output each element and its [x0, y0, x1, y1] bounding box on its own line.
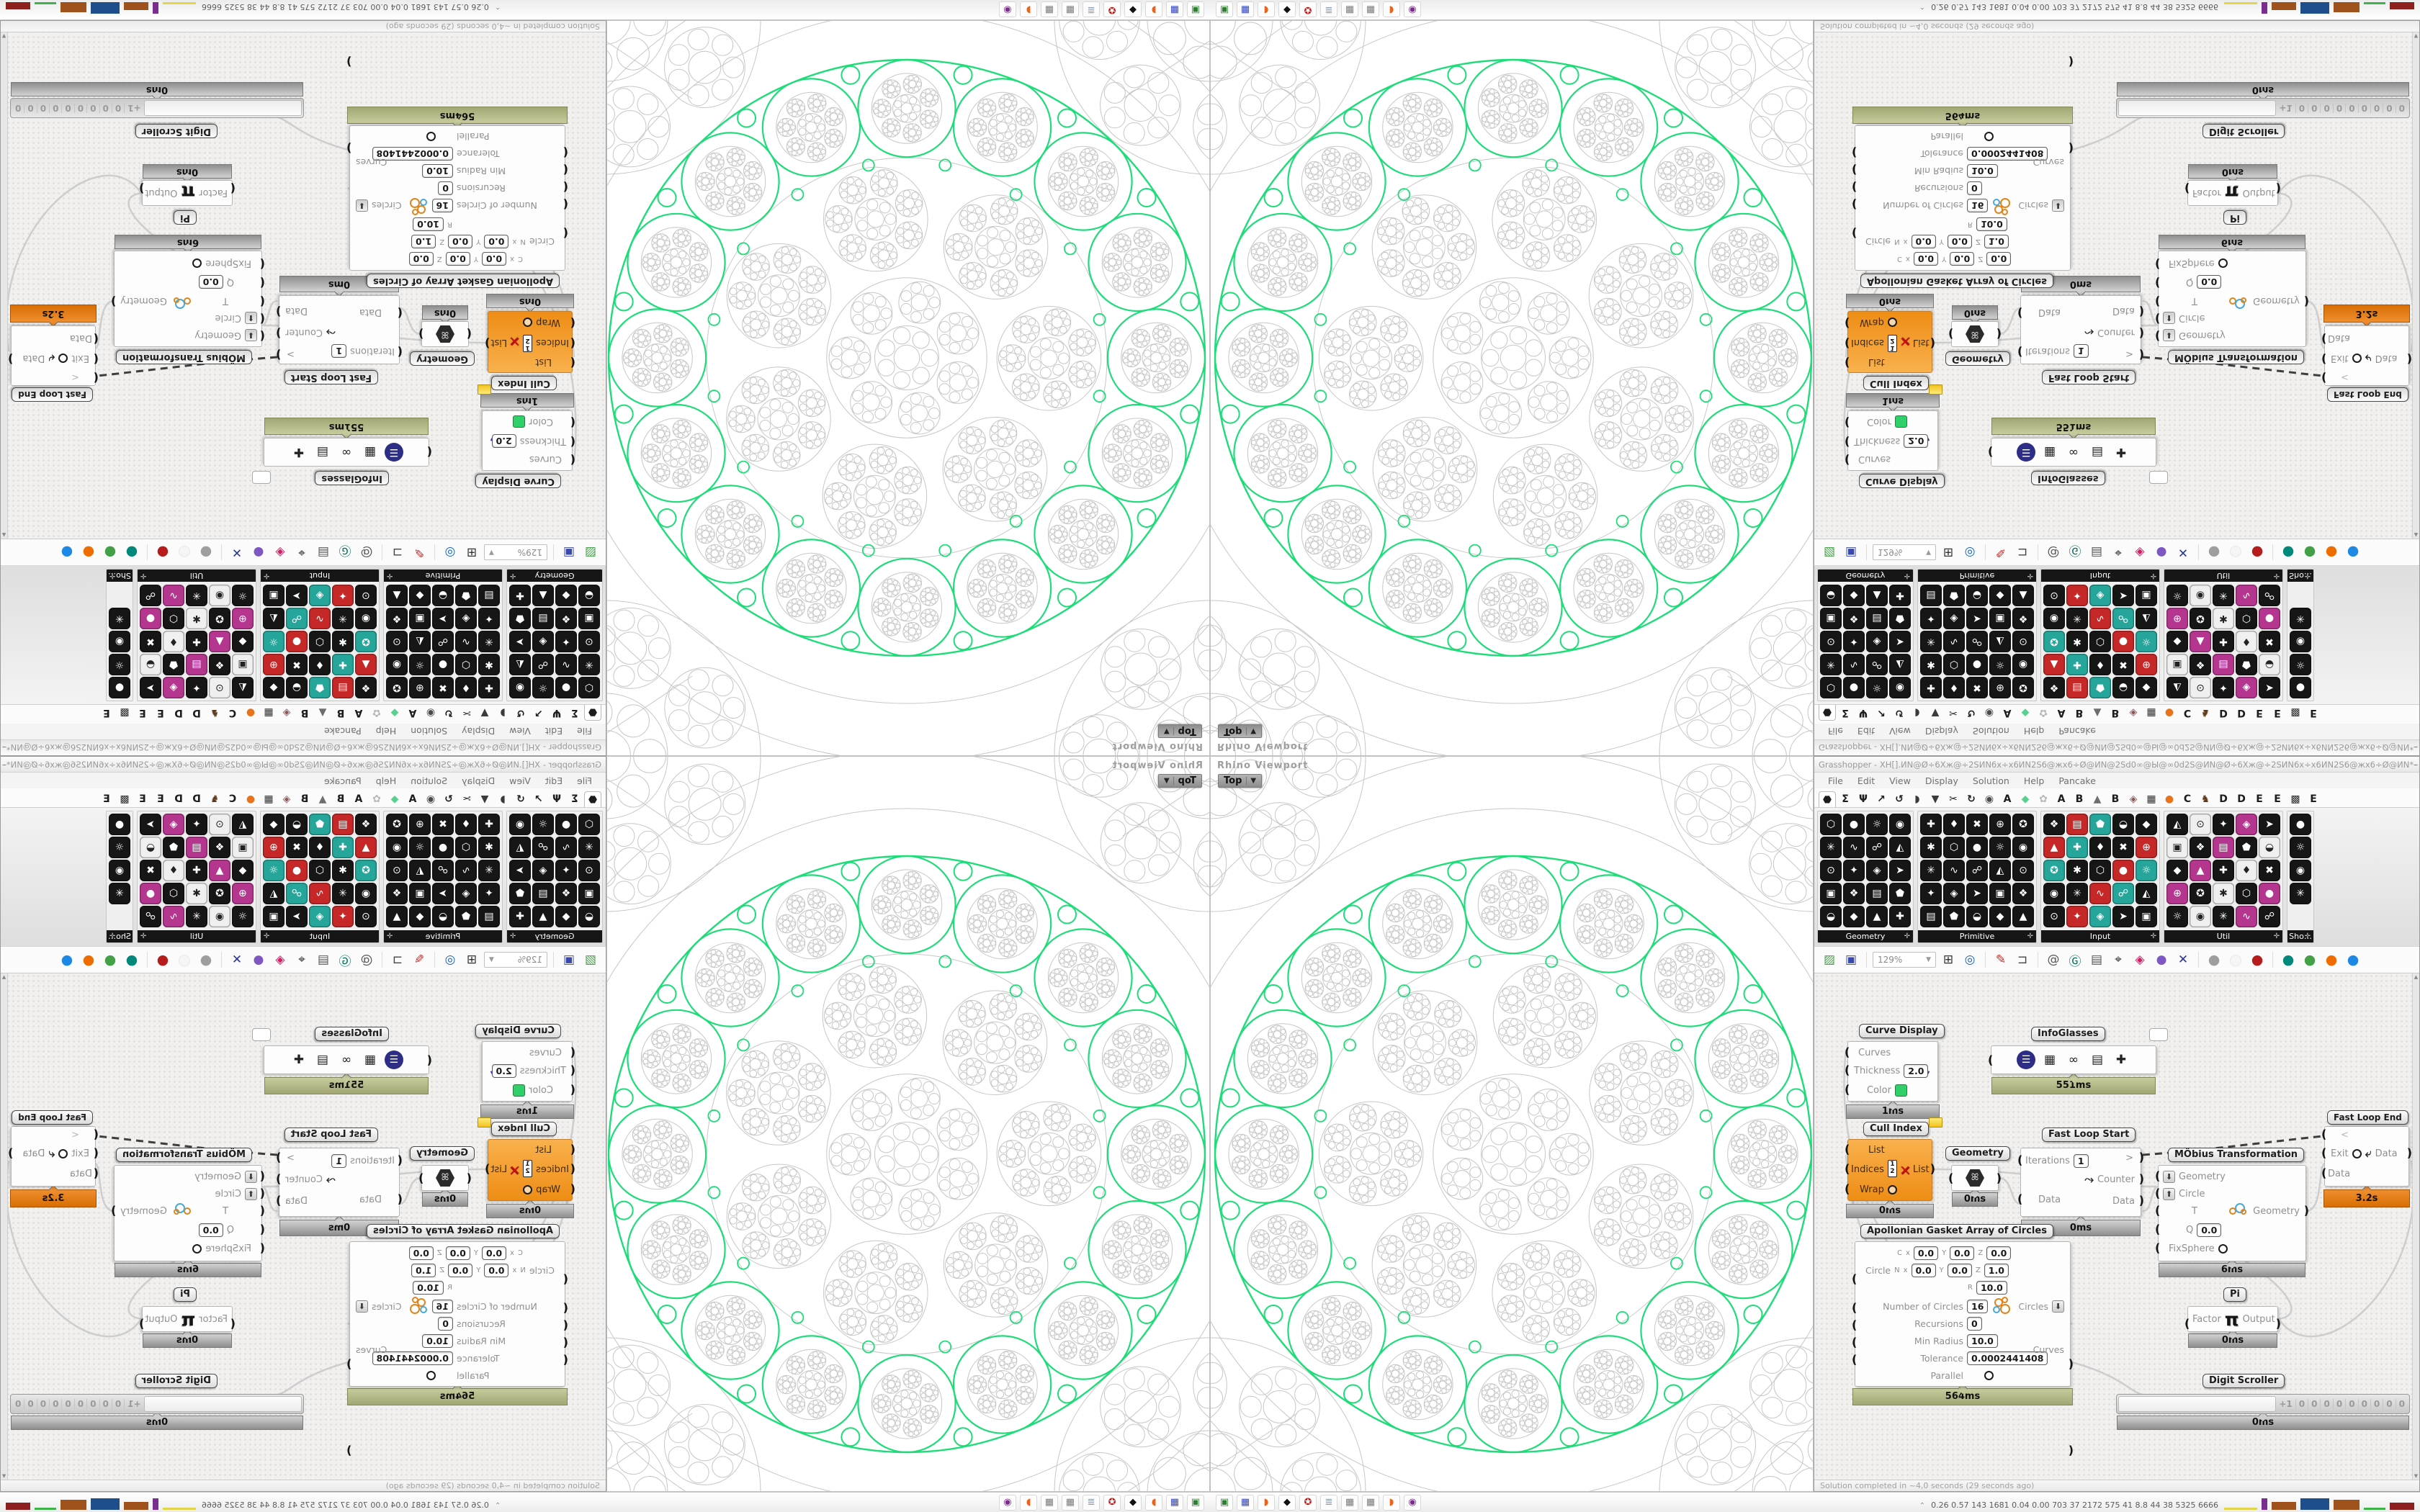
indices-input[interactable]: Indices	[1851, 338, 1884, 348]
infoglasses-title[interactable]: InfoGlasses	[2031, 471, 2105, 485]
taskbar-app-owl[interactable]: ◉	[999, 2, 1016, 18]
tab-curve[interactable]: ↺	[1891, 791, 1908, 807]
tab-plugin-flower[interactable]: ✿	[2035, 705, 2052, 721]
fast-loop-start-title[interactable]: Fast Loop Start	[284, 370, 378, 384]
palette-icon[interactable]: ✚	[186, 631, 207, 652]
recursions-value[interactable]: 0	[1967, 1317, 1982, 1331]
taskbar-app-firefox-2[interactable]: ◗	[1383, 2, 1400, 18]
palette-icon[interactable]: ☼	[2136, 631, 2157, 652]
graft-up-icon[interactable]: ⬆	[245, 312, 257, 325]
palette-icon[interactable]: ▤	[332, 814, 354, 835]
gumdrop-icon-2[interactable]: ●	[2248, 950, 2267, 969]
taskbar-app-maze-1[interactable]: ▦	[1341, 1495, 1358, 1511]
tab-transform[interactable]: ↻	[1963, 705, 1980, 721]
palette-icon[interactable]: ◉	[386, 837, 408, 858]
palette-icon[interactable]: ⬡	[163, 608, 184, 629]
palette-icon[interactable]: ☍	[2259, 585, 2280, 606]
scroller-digit[interactable]: 0	[62, 103, 74, 113]
chevron-down-icon[interactable]: ▼	[1164, 727, 1174, 735]
palette-icon[interactable]: ▲	[1866, 585, 1888, 606]
radius-value[interactable]: 10.0	[1976, 218, 2007, 232]
palette-icon[interactable]: ⊕	[2136, 654, 2157, 675]
tab-mesh[interactable]: ▼	[476, 705, 493, 721]
canvas-scrollbar[interactable]: ▲▼	[1, 32, 8, 539]
palette-icon[interactable]: ♦	[2089, 654, 2111, 675]
palette-icon[interactable]: ⬟	[2236, 837, 2257, 858]
taskbar-app-wolf[interactable]: ◆	[1278, 2, 1296, 18]
palette-group-label[interactable]: Sho…✛	[2287, 930, 2313, 942]
gumdrop-icon-4[interactable]: ●	[2300, 543, 2319, 562]
digit-scroller-slider[interactable]: +1000000000	[10, 1394, 304, 1414]
palette-icon[interactable]: ◒	[2112, 814, 2134, 835]
curves-input[interactable]: Curves	[529, 1048, 562, 1058]
fixsphere-toggle[interactable]	[192, 1244, 202, 1254]
palette-icon[interactable]: ⬟	[455, 585, 477, 606]
taskbar-app-notepad[interactable]: ≣	[1083, 2, 1100, 18]
zoom-extents-icon[interactable]: ⊞	[462, 543, 481, 562]
tab-plugin-bird[interactable]: ♞	[2197, 705, 2214, 721]
digit-scroller-slider[interactable]: +1000000000	[2116, 98, 2410, 118]
palette-icon[interactable]: ●	[1843, 677, 1865, 698]
recursions-value[interactable]: 0	[438, 1317, 453, 1331]
palette-icon[interactable]: ⬡	[1943, 654, 1965, 675]
tab-plugin-e2[interactable]: E	[2269, 791, 2286, 807]
tab-plugin-b2[interactable]: B	[2107, 791, 2124, 807]
palette-icon[interactable]: ✪	[386, 814, 408, 835]
exit-toggle[interactable]	[58, 354, 68, 364]
palette-icon[interactable]: ✖	[432, 677, 454, 698]
palette-icon[interactable]: ❖	[2190, 654, 2211, 675]
palette-icon[interactable]: ▣	[2136, 906, 2157, 927]
palette-icon[interactable]: ☍	[1966, 860, 1988, 881]
sticky-note-icon[interactable]	[478, 1117, 491, 1128]
center-x[interactable]: 0.0	[482, 1246, 506, 1260]
tab-sets[interactable]: Ψ	[548, 791, 565, 807]
tab-sets[interactable]: Ψ	[1855, 791, 1872, 807]
palette-icon[interactable]: ∿	[555, 654, 577, 675]
tab-mesh[interactable]: ▼	[1927, 705, 1944, 721]
palette-icon[interactable]: ♦	[163, 860, 184, 881]
palette-icon[interactable]: ➤	[140, 814, 161, 835]
pi-output[interactable]: Output	[2243, 1314, 2275, 1325]
tab-plugin-flower[interactable]: ✿	[2035, 791, 2052, 807]
scroller-digit[interactable]: 0	[2383, 103, 2395, 113]
palette-icon[interactable]: ◆	[555, 585, 577, 606]
palette-group-label[interactable]: Input✛	[2041, 570, 2159, 582]
taskbar-app-terminal[interactable]: ▣	[1216, 2, 1233, 18]
tab-plugin-dot[interactable]: ●	[242, 705, 259, 721]
curve-display-title[interactable]: Curve Display	[475, 1024, 561, 1038]
palette-icon[interactable]: ☼	[2166, 585, 2188, 606]
palette-icon[interactable]: ⬡	[1820, 814, 1842, 835]
palette-icon[interactable]: ◒	[432, 585, 454, 606]
palette-icon[interactable]: ✱	[1920, 837, 1942, 858]
list-input[interactable]: List	[535, 1145, 552, 1156]
save-icon[interactable]: ▣	[560, 543, 578, 562]
factor-input[interactable]: Factor	[2192, 1314, 2221, 1325]
tab-plugin-a1[interactable]: A	[404, 791, 421, 807]
palette-icon[interactable]: ⊙	[355, 585, 377, 606]
infoglasses-goggles-icon[interactable]: ∞	[2064, 1050, 2083, 1069]
graft-up-icon[interactable]: ⬆	[2163, 1188, 2175, 1200]
palette-icon[interactable]: ❖	[2043, 814, 2065, 835]
tab-plugin-mountain[interactable]: ▲	[314, 791, 331, 807]
palette-icon[interactable]: ◉	[509, 814, 531, 835]
gumdrop-icon-6[interactable]: ●	[58, 543, 76, 562]
palette-icon[interactable]: ☼	[1866, 677, 1888, 698]
palette-group-label[interactable]: Geometry✛	[1818, 930, 1913, 942]
palette-icon[interactable]: ◒	[1820, 906, 1842, 927]
chevron-down-icon[interactable]: ▼	[1246, 777, 1256, 785]
mobius-geometry-output[interactable]: Geometry	[120, 1206, 167, 1217]
gumdrop-icon-0[interactable]: ●	[2205, 543, 2223, 562]
parallel-toggle[interactable]	[426, 1371, 436, 1380]
palette-icon[interactable]: ✦	[186, 814, 207, 835]
palette-icon[interactable]: ✚	[1889, 906, 1911, 927]
loop-arrow-output[interactable]: >	[2125, 349, 2133, 360]
gha-icon[interactable]: Ⓖ	[336, 543, 354, 562]
taskbar-app-firefox[interactable]: ◗	[1258, 2, 1275, 18]
palette-icon[interactable]: ◆	[1843, 585, 1865, 606]
palette-icon[interactable]: ☍	[140, 585, 161, 606]
scroller-digit[interactable]: 0	[2308, 103, 2320, 113]
save-icon[interactable]: ▣	[560, 950, 578, 969]
taskbar-app-terminal[interactable]: ▣	[1187, 2, 1204, 18]
palette-icon[interactable]: ❖	[2012, 883, 2034, 904]
palette-icon[interactable]: ☼	[1866, 814, 1888, 835]
tab-plugin-a1[interactable]: A	[404, 705, 421, 721]
palette-icon[interactable]: ➤	[1889, 631, 1911, 652]
palette-icon[interactable]: ◆	[1989, 906, 2011, 927]
taskbar-app-maze-1[interactable]: ▦	[1341, 2, 1358, 18]
curves-output[interactable]: Curves	[356, 1344, 387, 1355]
tab-plugin-d2[interactable]: D	[170, 705, 187, 721]
sketch-pen-icon[interactable]: ✎	[1991, 950, 2010, 969]
palette-icon[interactable]: ▣	[1989, 608, 2011, 629]
viewport-projection-tab[interactable]: Top ▼	[1218, 774, 1262, 788]
menu-item-view[interactable]: View	[1883, 726, 1917, 738]
palette-icon[interactable]: ◭	[509, 654, 531, 675]
palette-icon[interactable]: ∿	[309, 883, 331, 904]
palette-icon[interactable]: ◈	[532, 631, 554, 652]
palette-icon[interactable]: ◉	[209, 585, 230, 606]
palette-icon[interactable]: ❖	[1843, 608, 1865, 629]
list-output[interactable]: List	[1913, 1164, 1930, 1175]
palette-icon[interactable]: ◭	[232, 677, 254, 698]
taskbar-app-firefox[interactable]: ◗	[1145, 1495, 1162, 1511]
counter-output[interactable]: Counter	[285, 1174, 323, 1185]
menu-item-help[interactable]: Help	[2017, 775, 2051, 787]
palette-icon[interactable]: ◭	[409, 860, 431, 881]
palette-icon[interactable]: ▣	[409, 883, 431, 904]
comment-bubble-icon[interactable]	[252, 1028, 271, 1041]
exit-door-icon[interactable]: ⊐	[2013, 950, 2032, 969]
wrap-toggle[interactable]	[523, 1185, 532, 1194]
viewport-projection-tab[interactable]: Top ▼	[1158, 774, 1202, 788]
palette-icon[interactable]: ▲	[1866, 906, 1888, 927]
pi-output[interactable]: Output	[145, 188, 177, 199]
palette-icon[interactable]: ◆	[232, 860, 254, 881]
mobius-title[interactable]: MÖbius Transformation	[2168, 1148, 2304, 1162]
tab-transform[interactable]: ↻	[440, 791, 457, 807]
palette-icon[interactable]: ∿	[455, 631, 477, 652]
tab-plugin-e3[interactable]: E	[2305, 791, 2322, 807]
palette-icon[interactable]: ◉	[109, 860, 130, 881]
menu-item-edit[interactable]: Edit	[539, 726, 569, 738]
palette-icon[interactable]: ◒	[2112, 677, 2134, 698]
cluster-icon[interactable]: ◈	[2130, 950, 2149, 969]
minimize-button[interactable]: –	[2, 743, 6, 753]
comment-bubble-icon[interactable]	[2149, 471, 2168, 484]
normal-y[interactable]: 0.0	[448, 1264, 472, 1277]
palette-icon[interactable]: ◒	[1966, 585, 1988, 606]
palette-icon[interactable]: ▲	[355, 654, 377, 675]
palette-icon[interactable]: ◉	[1889, 677, 1911, 698]
normal-z[interactable]: 1.0	[1984, 1264, 2009, 1277]
palette-icon[interactable]: ◭	[409, 631, 431, 652]
tab-display[interactable]: ◉	[1981, 705, 1998, 721]
palette-icon[interactable]: ⬟	[309, 677, 331, 698]
palette-icon[interactable]: ●	[432, 837, 454, 858]
mobius-title[interactable]: MÖbius Transformation	[2168, 350, 2304, 364]
palette-icon[interactable]: ◒	[140, 837, 161, 858]
curves-input[interactable]: Curves	[1858, 1048, 1891, 1058]
palette-icon[interactable]: ◉	[2190, 906, 2211, 927]
infoglasses-list-icon[interactable]: ☰	[2017, 1050, 2035, 1069]
normal-z[interactable]: 1.0	[411, 1264, 436, 1277]
infoglasses-drawers-icon[interactable]: ▤	[2088, 443, 2107, 462]
fls-data-output[interactable]: Data	[285, 1196, 308, 1207]
tab-intersect[interactable]: ✂	[1945, 705, 1962, 721]
palette-icon[interactable]: ⊙	[355, 906, 377, 927]
palette-icon[interactable]: ▣	[2136, 585, 2157, 606]
palette-icon[interactable]: ☼	[409, 654, 431, 675]
palette-icon[interactable]: ✖	[1966, 677, 1988, 698]
palette-icon[interactable]: ⬡	[455, 837, 477, 858]
palette-icon[interactable]: ◆	[263, 814, 284, 835]
palette-icon[interactable]: ✚	[332, 654, 354, 675]
palette-icon[interactable]: ⊙	[386, 860, 408, 881]
loop-arrow-input[interactable]: <	[71, 372, 79, 383]
palette-icon[interactable]: ✱	[186, 883, 207, 904]
menu-item-solution[interactable]: Solution	[404, 726, 454, 738]
palette-icon[interactable]: ◈	[163, 677, 184, 698]
find-icon[interactable]: ⌖	[292, 950, 311, 969]
tab-vector[interactable]: ↗	[1873, 705, 1890, 721]
menu-item-edit[interactable]: Edit	[1851, 775, 1881, 787]
palette-icon[interactable]: ●	[2259, 608, 2280, 629]
taskbar-app-terminal[interactable]: ▣	[1216, 1495, 1233, 1511]
palette-icon[interactable]: ◆	[409, 906, 431, 927]
graft-up-icon[interactable]: ⬆	[2163, 312, 2175, 325]
palette-icon[interactable]: ✳	[1920, 860, 1942, 881]
exit-toggle[interactable]	[2352, 1149, 2362, 1158]
palette-icon[interactable]: ▲	[209, 631, 230, 652]
palette-icon[interactable]: ♦	[309, 837, 331, 858]
palette-icon[interactable]: ☍	[286, 883, 308, 904]
palette-icon[interactable]: ◈	[163, 814, 184, 835]
tab-surface[interactable]: ◗	[1909, 705, 1926, 721]
palette-icon[interactable]: ♦	[1943, 814, 1965, 835]
rhino-viewport[interactable]: Rhino Viewport Top ▼	[1210, 20, 1814, 756]
tab-maths[interactable]: Σ	[566, 705, 583, 721]
palette-icon[interactable]: ◉	[2012, 654, 2034, 675]
tab-sets[interactable]: Ψ	[1855, 705, 1872, 721]
palette-group-label[interactable]: Primitive✛	[1918, 930, 2036, 942]
palette-icon[interactable]: ⬟	[509, 883, 531, 904]
scroller-digit[interactable]: 0	[37, 1399, 50, 1409]
palette-icon[interactable]: ●	[2259, 883, 2280, 904]
geometry-param-title[interactable]: Geometry	[1945, 1146, 2010, 1161]
palette-icon[interactable]: ➤	[509, 860, 531, 881]
palette-icon[interactable]: ◭	[1989, 631, 2011, 652]
palette-icon[interactable]: ✖	[2112, 654, 2134, 675]
tab-plugin-dot[interactable]: ●	[242, 791, 259, 807]
palette-group-label[interactable]: Input✛	[2041, 930, 2159, 942]
palette-icon[interactable]: ✚	[2066, 837, 2088, 858]
gumdrop-icon-0[interactable]: ●	[197, 543, 215, 562]
recursions-value[interactable]: 0	[438, 182, 453, 196]
palette-icon[interactable]: ✪	[386, 677, 408, 698]
palette-icon[interactable]: ▲	[2190, 860, 2211, 881]
loop-arrow-output[interactable]: >	[287, 1153, 295, 1164]
palette-icon[interactable]: ●	[432, 654, 454, 675]
palette-icon[interactable]: ➤	[286, 585, 308, 606]
palette-icon[interactable]: ◈	[1943, 883, 1965, 904]
tab-display[interactable]: ◉	[422, 705, 439, 721]
document-icon[interactable]: ▤	[314, 543, 333, 562]
viewport-projection-tab[interactable]: Top ▼	[1218, 724, 1262, 738]
palette-icon[interactable]: ∿	[2236, 906, 2257, 927]
palette-icon[interactable]: ♦	[309, 654, 331, 675]
palette-icon[interactable]: ✦	[2213, 677, 2234, 698]
palette-icon[interactable]: ⊕	[2166, 883, 2188, 904]
tab-plugin-flower[interactable]: ✿	[368, 705, 385, 721]
center-z[interactable]: 0.0	[409, 253, 434, 266]
taskbar-app-red-app[interactable]: ✪	[1103, 1495, 1121, 1511]
dna-icon[interactable]: ✕	[2174, 543, 2192, 562]
palette-group-label[interactable]: Util✛	[2164, 570, 2282, 582]
scroller-digit[interactable]: 0	[100, 103, 112, 113]
palette-icon[interactable]: ❖	[2190, 837, 2211, 858]
palette-icon[interactable]: ✱	[2066, 631, 2088, 652]
palette-icon[interactable]: ⊕	[263, 837, 284, 858]
palette-icon[interactable]: ✦	[478, 608, 500, 629]
parallel-toggle[interactable]	[1984, 1371, 1994, 1380]
palette-icon[interactable]: ✪	[2043, 631, 2065, 652]
digit-scroller-title[interactable]: Digit Scroller	[135, 124, 218, 138]
tab-plugin-e2[interactable]: E	[134, 791, 151, 807]
palette-icon[interactable]: ✪	[2043, 860, 2065, 881]
palette-icon[interactable]: ⬡	[1943, 837, 1965, 858]
palette-group-label[interactable]: Util✛	[2164, 930, 2282, 942]
tab-display[interactable]: ◉	[1981, 791, 1998, 807]
tab-plugin-gem[interactable]: ◆	[386, 705, 403, 721]
graft-down-icon[interactable]: ⬇	[2163, 1171, 2175, 1183]
palette-group-label[interactable]: Input✛	[261, 930, 379, 942]
indices-input[interactable]: Indices	[1851, 1164, 1884, 1175]
palette-icon[interactable]: ✳	[478, 860, 500, 881]
palette-icon[interactable]: ▤	[478, 585, 500, 606]
tab-vector[interactable]: ↗	[1873, 791, 1890, 807]
palette-icon[interactable]: ∿	[2089, 608, 2111, 629]
tab-plugin-e1[interactable]: E	[152, 705, 169, 721]
palette-icon[interactable]: ✪	[355, 631, 377, 652]
palette-icon[interactable]: ❖	[209, 837, 230, 858]
document-icon[interactable]: ▤	[314, 950, 333, 969]
normal-y[interactable]: 0.0	[1948, 1264, 1972, 1277]
tab-curve[interactable]: ↺	[512, 705, 529, 721]
palette-icon[interactable]: ◭	[232, 814, 254, 835]
palette-icon[interactable]: ◉	[2043, 883, 2065, 904]
dna-icon[interactable]: ✕	[228, 543, 246, 562]
scroller-digit[interactable]: 0	[2396, 1399, 2408, 1409]
mobius-geometry-input[interactable]: Geometry	[2179, 330, 2226, 341]
palette-icon[interactable]: ➤	[1966, 883, 1988, 904]
scroller-increment[interactable]: +1	[125, 103, 143, 113]
mobius-geometry-input[interactable]: Geometry	[194, 330, 241, 341]
palette-icon[interactable]: ✦	[1920, 608, 1942, 629]
graft-down-icon[interactable]: ⬇	[2163, 330, 2175, 342]
palette-icon[interactable]: ➤	[2259, 677, 2280, 698]
exit-door-icon[interactable]: ⊐	[388, 950, 407, 969]
center-y[interactable]: 0.0	[446, 1246, 470, 1260]
gumdrop-icon-6[interactable]: ●	[2344, 950, 2362, 969]
obscure-icon[interactable]: @	[2044, 950, 2063, 969]
counter-output[interactable]: Counter	[285, 328, 323, 338]
palette-icon[interactable]: ➤	[2112, 585, 2134, 606]
infoglasses-title[interactable]: InfoGlasses	[2031, 1027, 2105, 1041]
gumdrop-icon-2[interactable]: ●	[153, 543, 172, 562]
canvas-scrollbar[interactable]: ▲▼	[1, 973, 8, 1480]
palette-icon[interactable]: ◉	[2190, 585, 2211, 606]
palette-icon[interactable]: ⊙	[2043, 906, 2065, 927]
palette-icon[interactable]: ◒	[286, 814, 308, 835]
gumdrop-icon-4[interactable]: ●	[101, 950, 120, 969]
exit-door-icon[interactable]: ⊐	[2013, 543, 2032, 562]
tab-plugin-e3[interactable]: E	[98, 791, 115, 807]
gumdrop-icon-1[interactable]: ●	[2226, 543, 2245, 562]
center-z[interactable]: 0.0	[1986, 253, 2011, 266]
taskbar-app-notepad[interactable]: ≣	[1320, 1495, 1337, 1511]
palette-icon[interactable]: ☍	[1966, 631, 1988, 652]
tab-plugin-e2[interactable]: E	[2269, 705, 2286, 721]
palette-icon[interactable]: ❖	[355, 814, 377, 835]
palette-icon[interactable]: ⊕	[2136, 837, 2157, 858]
palette-icon[interactable]: ⬟	[1889, 883, 1911, 904]
fle-data-output[interactable]: Data	[2375, 354, 2398, 364]
palette-icon[interactable]: ▤	[478, 906, 500, 927]
palette-icon[interactable]: ●	[555, 814, 577, 835]
gumdrop-icon-1[interactable]: ●	[175, 543, 194, 562]
taskbar-app-notepad[interactable]: ≣	[1320, 2, 1337, 18]
tab-plugin-mountain[interactable]: ▲	[314, 705, 331, 721]
tab-intersect[interactable]: ✂	[1945, 791, 1962, 807]
tab-plugin-b2[interactable]: B	[296, 791, 313, 807]
mobius-circle-input[interactable]: Circle	[215, 313, 241, 324]
taskbar-app-wolf[interactable]: ◆	[1124, 2, 1142, 18]
palette-group-label[interactable]: Geometry✛	[507, 930, 602, 942]
palette-icon[interactable]: ∿	[455, 860, 477, 881]
fast-loop-end-title[interactable]: Fast Loop End	[12, 1110, 93, 1125]
gumdrop-icon-5[interactable]: ●	[2322, 950, 2341, 969]
palette-icon[interactable]: ✖	[286, 654, 308, 675]
normal-x[interactable]: 0.0	[1912, 1264, 1936, 1277]
palette-icon[interactable]: ▤	[332, 677, 354, 698]
thickness-value[interactable]: 2.0	[1904, 1064, 1928, 1078]
fle-data-input[interactable]: Data	[2328, 1169, 2350, 1179]
zoom-level-input[interactable]: 129%▼	[484, 544, 547, 560]
